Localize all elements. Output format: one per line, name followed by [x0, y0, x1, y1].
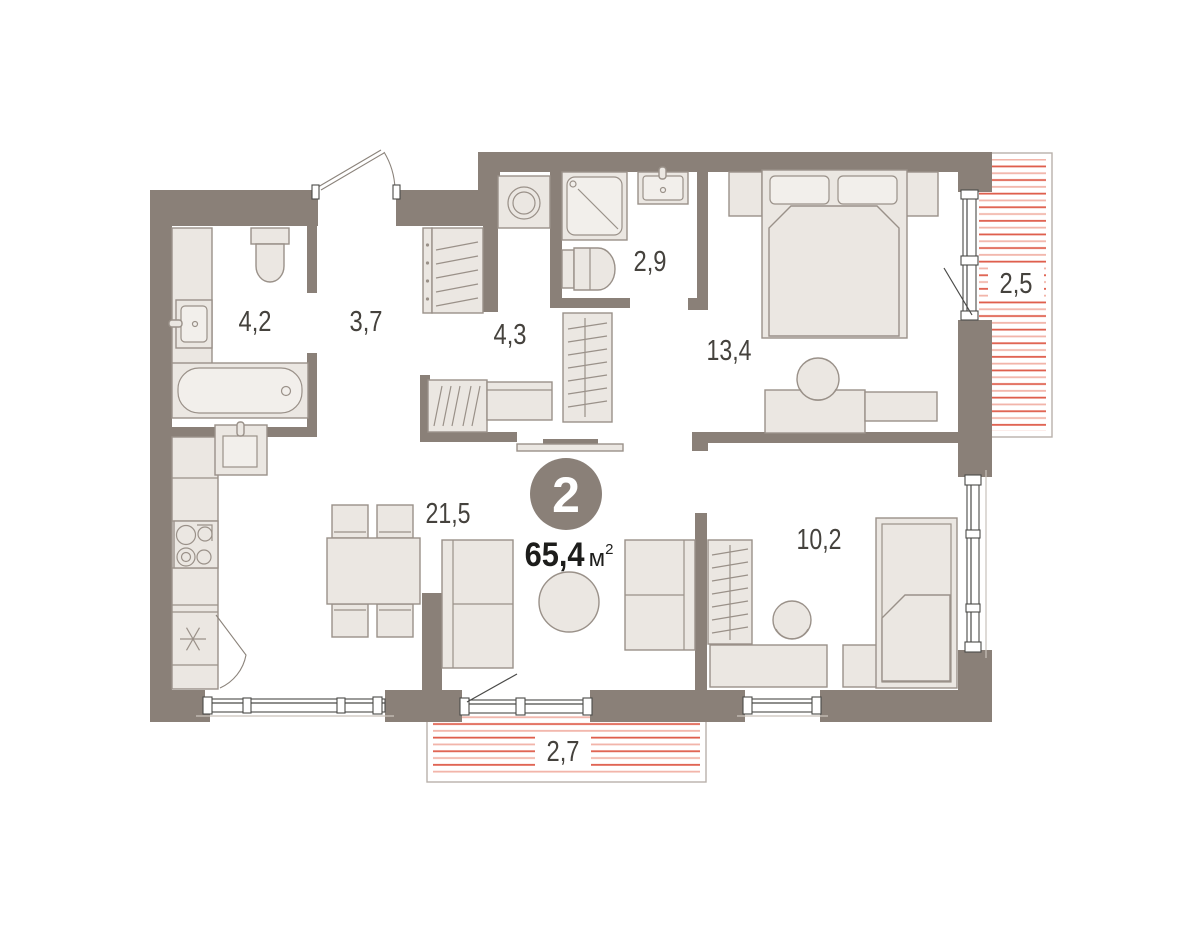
- wall-segment: [483, 172, 498, 312]
- door-window-frame: [462, 700, 590, 713]
- wall-segment: [697, 172, 708, 310]
- tv-bracket: [543, 439, 598, 444]
- dining-chair: [332, 505, 368, 538]
- wall-segment: [958, 152, 992, 192]
- room-area-label-bathroom: 4,2: [239, 306, 272, 338]
- wall-segment: [590, 690, 745, 722]
- shower-room: [562, 167, 688, 290]
- nightstand: [729, 172, 762, 216]
- window-cap: [743, 697, 752, 714]
- desk-chair: [773, 601, 811, 639]
- toilet-tank: [251, 228, 289, 244]
- window-mullion: [243, 698, 251, 713]
- window-cap: [812, 697, 821, 714]
- window-cap: [516, 698, 525, 715]
- kitchen-sink: [215, 422, 267, 475]
- faucet-icon: [659, 167, 666, 179]
- door-jamb: [312, 185, 319, 199]
- sink-basin: [223, 436, 257, 467]
- shower: [562, 172, 627, 240]
- door-swing-arc: [384, 152, 395, 189]
- window-cap: [965, 642, 981, 652]
- stove: [174, 521, 218, 568]
- door-leaf: [318, 150, 384, 190]
- total-area-superscript: 2: [605, 541, 613, 558]
- nightstand: [905, 172, 938, 216]
- wall-segment: [820, 690, 992, 722]
- window-mullion: [337, 698, 345, 713]
- shoe-closet: [428, 380, 487, 432]
- bathtub: [172, 363, 308, 418]
- washer-body: [498, 176, 550, 228]
- living-room: [327, 505, 695, 668]
- window-bedroom-second: [737, 690, 828, 716]
- wall-segment: [150, 190, 318, 226]
- bedroom-main: [729, 170, 938, 433]
- room-area-label-living: 21,5: [426, 498, 471, 530]
- hook-icon: [426, 279, 429, 282]
- hook-icon: [426, 297, 429, 300]
- faucet-icon: [169, 320, 182, 327]
- room-area-label-shower-room: 2,9: [634, 246, 667, 278]
- wall-segment: [695, 513, 707, 690]
- shower-room-toilet: [562, 248, 615, 290]
- window-cap: [583, 698, 592, 715]
- dining-chair: [377, 604, 413, 637]
- total-area: 65,4м2: [525, 536, 614, 574]
- floor-plan-canvas: 4,2 3,7 4,3 2,9 13,4 21,5 10,2 2,5 2,7 2…: [0, 0, 1200, 931]
- door-jamb: [393, 185, 400, 199]
- bench: [487, 382, 552, 420]
- floor-plan-page: 4,2 3,7 4,3 2,9 13,4 21,5 10,2 2,5 2,7 2…: [0, 0, 1200, 931]
- wall-segment: [420, 432, 517, 442]
- door-window-frame: [963, 192, 976, 318]
- window-living: [196, 690, 394, 716]
- window-frame: [745, 699, 820, 712]
- cabinet: [865, 392, 937, 421]
- window-mullion: [966, 530, 980, 538]
- toilet-bowl: [256, 244, 284, 282]
- window-cap: [961, 256, 978, 265]
- entry-door: [312, 150, 400, 199]
- window-frame: [967, 477, 979, 650]
- washing-machine: [498, 176, 550, 228]
- pillow: [770, 176, 829, 204]
- blanket: [882, 595, 950, 681]
- desk-chair: [797, 358, 839, 400]
- total-area-value: 65,4: [525, 536, 585, 574]
- dining-chair: [377, 505, 413, 538]
- toilet-bowl: [574, 248, 615, 290]
- wall-segment: [550, 172, 562, 308]
- tv-unit: [517, 439, 623, 451]
- wall-segment: [692, 443, 708, 451]
- shower-room-sink: [638, 167, 688, 204]
- window-cap: [965, 475, 981, 485]
- wall-segment: [478, 152, 992, 172]
- window-cap: [460, 698, 469, 715]
- single-bed: [876, 518, 957, 688]
- dining-chair: [332, 604, 368, 637]
- window-cap: [373, 697, 382, 714]
- door-leaf: [467, 674, 517, 702]
- window-frame: [205, 699, 385, 712]
- room-area-label-wardrobe: 4,3: [494, 319, 527, 351]
- wall-segment: [422, 593, 442, 690]
- sink-basin: [181, 306, 207, 342]
- faucet-icon: [237, 422, 244, 436]
- kitchen: [172, 422, 267, 689]
- tv-console: [517, 444, 623, 451]
- window-mullion: [966, 604, 980, 612]
- sofa-left: [442, 540, 513, 668]
- wall-segment: [396, 190, 480, 226]
- cabinet: [843, 645, 877, 687]
- balcony-door-bottom: [460, 674, 592, 715]
- wall-segment: [307, 190, 317, 293]
- toilet-tank: [562, 250, 574, 288]
- room-count-value: 2: [552, 467, 580, 523]
- window-cap: [203, 697, 212, 714]
- apartment-summary: 2 65,4м2: [525, 458, 614, 574]
- window-cap: [961, 311, 978, 320]
- window-bedroom-second-right: [960, 470, 992, 658]
- hook-icon: [426, 243, 429, 246]
- window-cap: [961, 190, 978, 199]
- room-area-label-loggia-right: 2,5: [1000, 268, 1033, 300]
- toilet: [251, 228, 289, 282]
- room-area-label-bedroom-second: 10,2: [797, 524, 842, 556]
- wardrobe: [708, 540, 752, 644]
- wall-segment: [958, 320, 992, 477]
- coffee-table: [539, 572, 599, 632]
- total-area-unit: м: [589, 545, 606, 572]
- sofa-right: [625, 540, 695, 650]
- hook-icon: [426, 261, 429, 264]
- bathtub-basin: [178, 368, 302, 413]
- wall-segment: [150, 190, 172, 722]
- pillow: [838, 176, 897, 204]
- room-area-label-loggia-bottom: 2,7: [547, 736, 580, 768]
- desk: [710, 645, 827, 687]
- balcony-door-right: [944, 190, 978, 320]
- room-area-label-hallway: 3,7: [350, 306, 383, 338]
- wall-segment: [150, 690, 210, 722]
- room-area-label-bedroom-main: 13,4: [707, 335, 752, 367]
- bathroom-sink: [169, 300, 212, 348]
- fridge-door-swing: [216, 615, 246, 688]
- wall-segment: [385, 690, 462, 722]
- tall-wardrobe: [563, 313, 612, 422]
- dining-table: [327, 538, 420, 604]
- wall-segment: [550, 298, 630, 308]
- blanket: [769, 206, 899, 336]
